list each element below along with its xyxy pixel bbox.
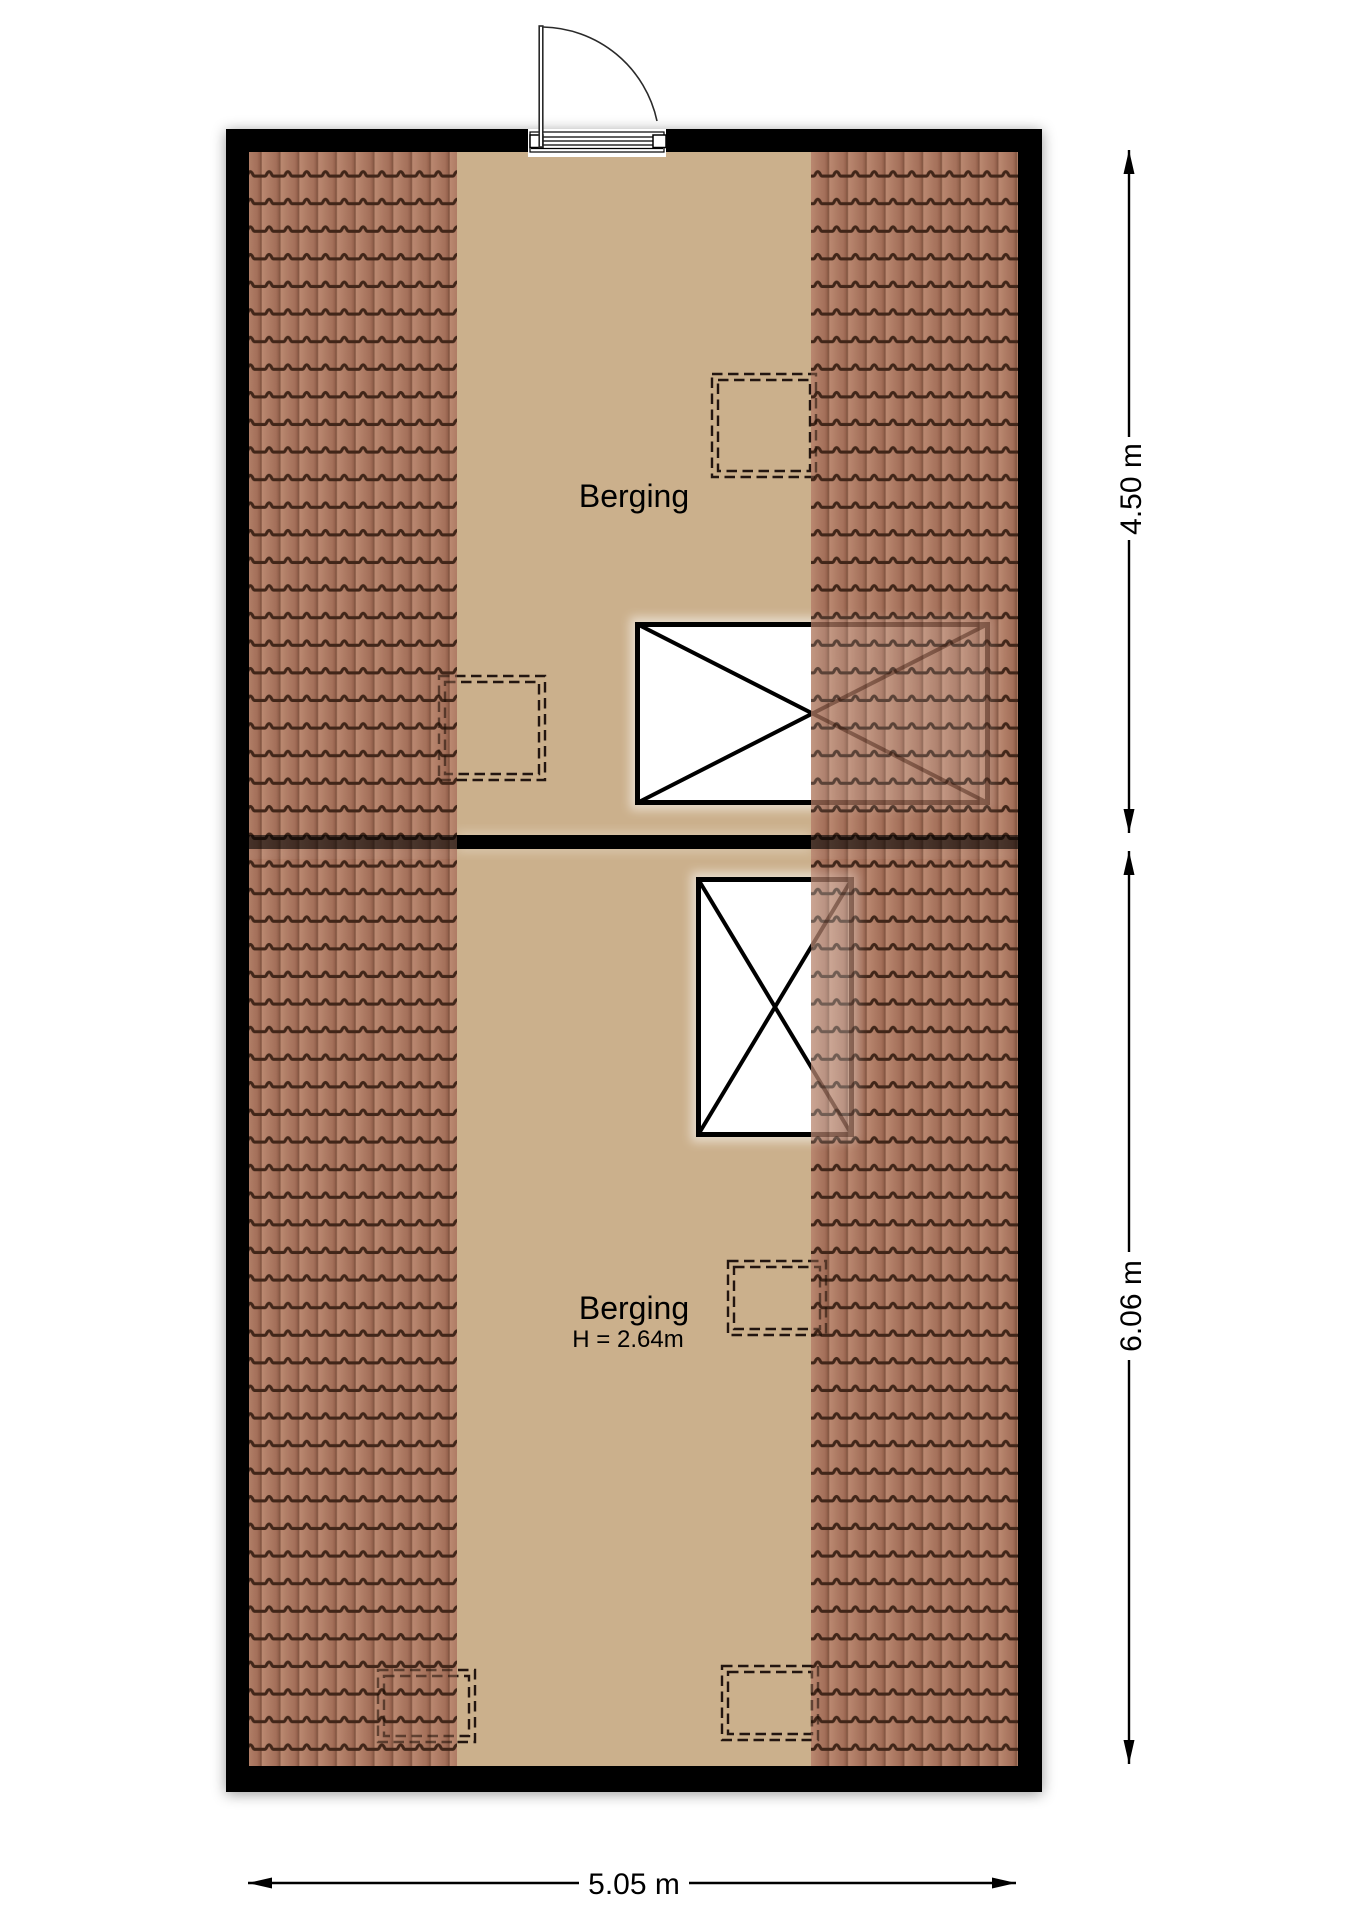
svg-text:4.50 m: 4.50 m: [1115, 443, 1148, 535]
svg-text:6.06 m: 6.06 m: [1115, 1260, 1148, 1352]
svg-text:5.05 m: 5.05 m: [588, 1868, 680, 1901]
svg-text:Berging: Berging: [579, 478, 689, 514]
svg-text:Berging: Berging: [579, 1290, 689, 1326]
svg-text:H = 2.64m: H = 2.64m: [572, 1326, 683, 1353]
